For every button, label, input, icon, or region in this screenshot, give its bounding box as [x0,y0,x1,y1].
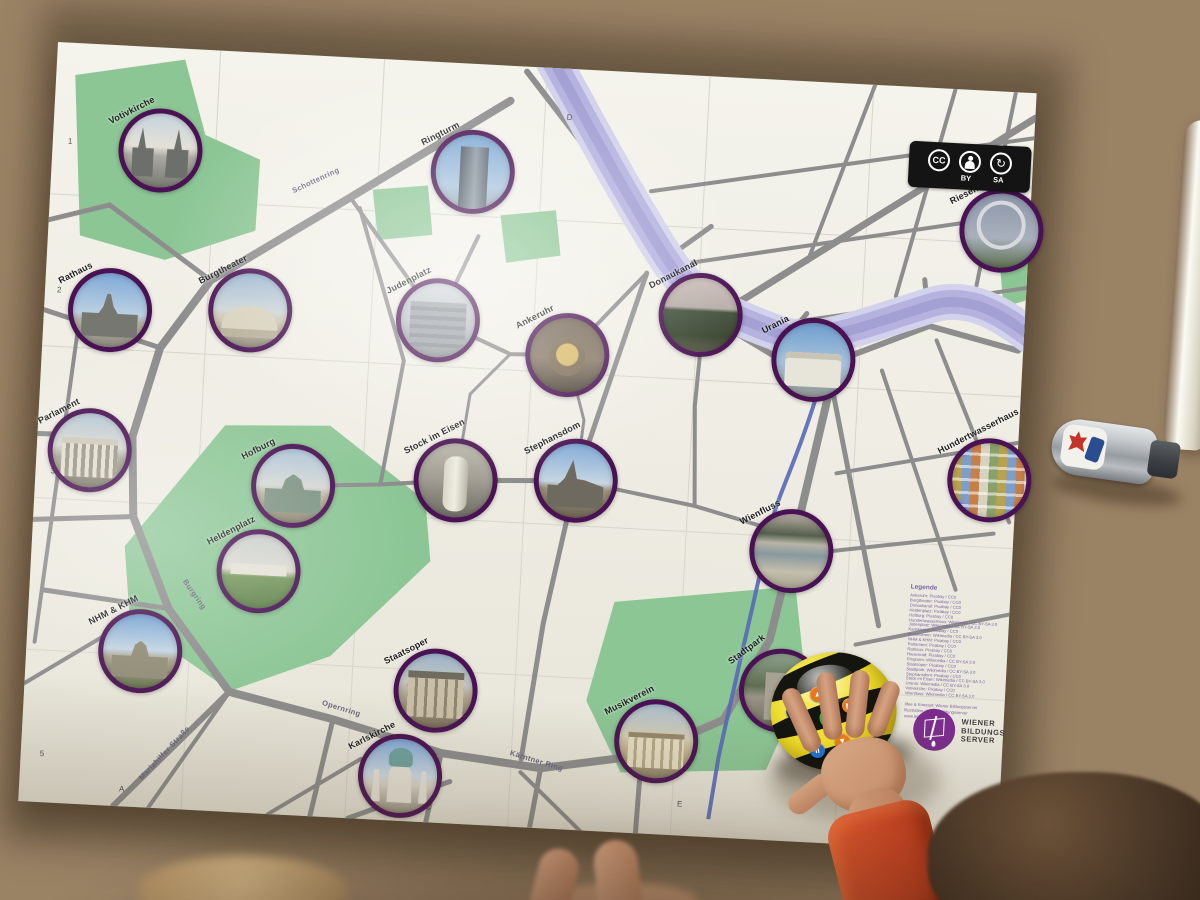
parlament-photo [46,406,134,494]
wienfluss-photo [747,507,835,595]
staatsoper-photo [391,647,479,735]
sticker-blue-shape [1084,436,1105,463]
landmark-stephansdom: Stephansdom [532,437,620,525]
landmark-riesenrad: Riesenrad [957,186,1045,274]
bottle-cap [1147,439,1182,479]
stock-im-eisen-photo [411,436,499,524]
judenplatz-photo [394,276,482,364]
donaukanal-photo [656,271,744,359]
stephansdom-photo [532,437,620,525]
ankeruhr-photo [523,311,611,399]
hundertwasserhaus-photo [945,436,1033,524]
rathaus-photo [66,266,154,354]
bottle-sticker [1059,423,1108,471]
cc-by-person-icon [958,150,981,173]
photo-scene: 1 2 3 5 A C E D Schottenring Burgring Op… [0,0,1200,900]
cc-by-label: BY [960,173,971,183]
cc-sa-label: SA [993,175,1004,185]
landmark-burgtheater: Burgtheater [206,266,294,354]
legend-credits-block: Legende Ankeruhr: Pixabay / CC0Burgtheat… [904,583,1007,723]
landmark-staatsoper: Staatsoper [391,647,479,735]
cc-icon: CC [927,149,950,172]
cc-license-badge: CC ↻ BY SA [908,141,1032,193]
landmark-wienfluss: Wienfluss [747,507,835,595]
urania-photo [769,316,857,404]
grid-letter-d: D [567,113,573,122]
burgtheater-photo [206,266,294,354]
landmark-parlament: Parlament [46,406,134,494]
ringturm-photo [429,128,517,216]
landmark-stock-im-eisen: Stock im Eisen [411,436,499,524]
landmark-rathaus: Rathaus [66,266,154,354]
landmark-urania: Urania [769,316,857,404]
legend-credit-lines: Ankeruhr: Pixabay / CC0Burgtheater: Pixa… [905,593,1006,701]
votivkirche-photo [116,106,204,194]
bottom-shadow [0,740,1200,900]
landmark-nhm-khm: NHM & KHM [96,607,184,695]
cc-sa-arrow-icon: ↻ [989,152,1012,175]
landmark-judenplatz: Judenplatz [394,276,482,364]
hofburg-photo [249,442,337,530]
heldenplatz-photo [214,527,302,615]
landmark-votivkirche: Votivkirche [116,106,204,194]
riesenrad-photo [957,186,1045,274]
grid-number-2: 2 [57,285,62,294]
landmark-hofburg: Hofburg [249,442,337,530]
landmark-ankeruhr: Ankeruhr [523,311,611,399]
nhm-khm-photo [96,607,184,695]
landmark-hundertwasserhaus: Hundertwasserhaus [945,436,1033,524]
grid-number-1: 1 [68,137,73,146]
landmark-donaukanal: Donaukanal [656,271,744,359]
landmark-ringturm: Ringturm [429,128,517,216]
sticker-red-shape [1067,430,1088,452]
landmark-heldenplatz: Heldenplatz [214,527,302,615]
